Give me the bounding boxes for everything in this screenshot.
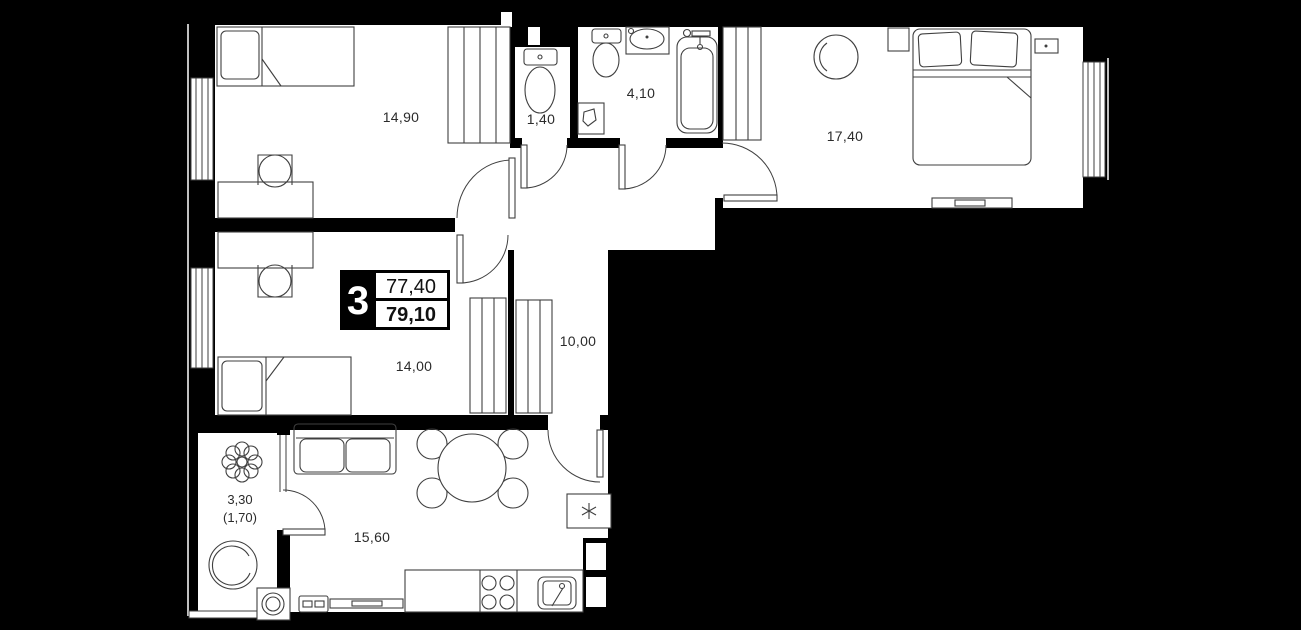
label-bedroom-middle: 14,00 xyxy=(396,358,433,374)
label-kitchen-living: 15,60 xyxy=(354,529,391,545)
vent-shaft-2 xyxy=(586,577,606,607)
room-bedroom-top-right xyxy=(723,27,1083,208)
unit-area-bottom: 79,10 xyxy=(386,304,436,326)
fridge-icon xyxy=(567,494,611,528)
room-bathroom xyxy=(578,27,718,138)
wall-niche-2 xyxy=(528,27,540,45)
unit-area-top: 77,40 xyxy=(386,276,436,298)
floor-plan: 3 77,40 79,10 14,90 1,40 4,10 17,40 10,0… xyxy=(0,0,1301,630)
wc-doorway xyxy=(522,138,567,148)
balcony-window-gap xyxy=(277,435,290,492)
window-bedroom-top-right xyxy=(1083,62,1105,177)
kitchen-doorway xyxy=(548,415,600,430)
label-bedroom-top-left: 14,90 xyxy=(383,109,420,125)
label-wc: 1,40 xyxy=(527,111,555,127)
floor-plan-canvas: 3 77,40 79,10 14,90 1,40 4,10 17,40 10,0… xyxy=(0,0,1301,630)
window-bedroom-top-left xyxy=(191,78,213,180)
label-hallway: 10,00 xyxy=(560,333,597,349)
bedroom-top-right-doorway xyxy=(712,148,724,198)
balcony-doorway xyxy=(277,492,290,530)
unit-rooms-count: 3 xyxy=(347,279,369,323)
unit-badge: 3 77,40 79,10 xyxy=(340,270,450,330)
vent-shaft-1 xyxy=(586,543,606,570)
label-balcony-area-reduced: (1,70) xyxy=(223,510,257,525)
bathroom-doorway xyxy=(620,138,666,148)
window-bedroom-middle xyxy=(191,268,213,368)
washing-machine-icon xyxy=(257,588,290,620)
label-bathroom: 4,10 xyxy=(627,85,655,101)
label-bedroom-top-right: 17,40 xyxy=(827,128,864,144)
room-floors xyxy=(198,12,1083,612)
wall-niche-1 xyxy=(501,12,512,27)
label-balcony-area: 3,30 xyxy=(227,492,252,507)
